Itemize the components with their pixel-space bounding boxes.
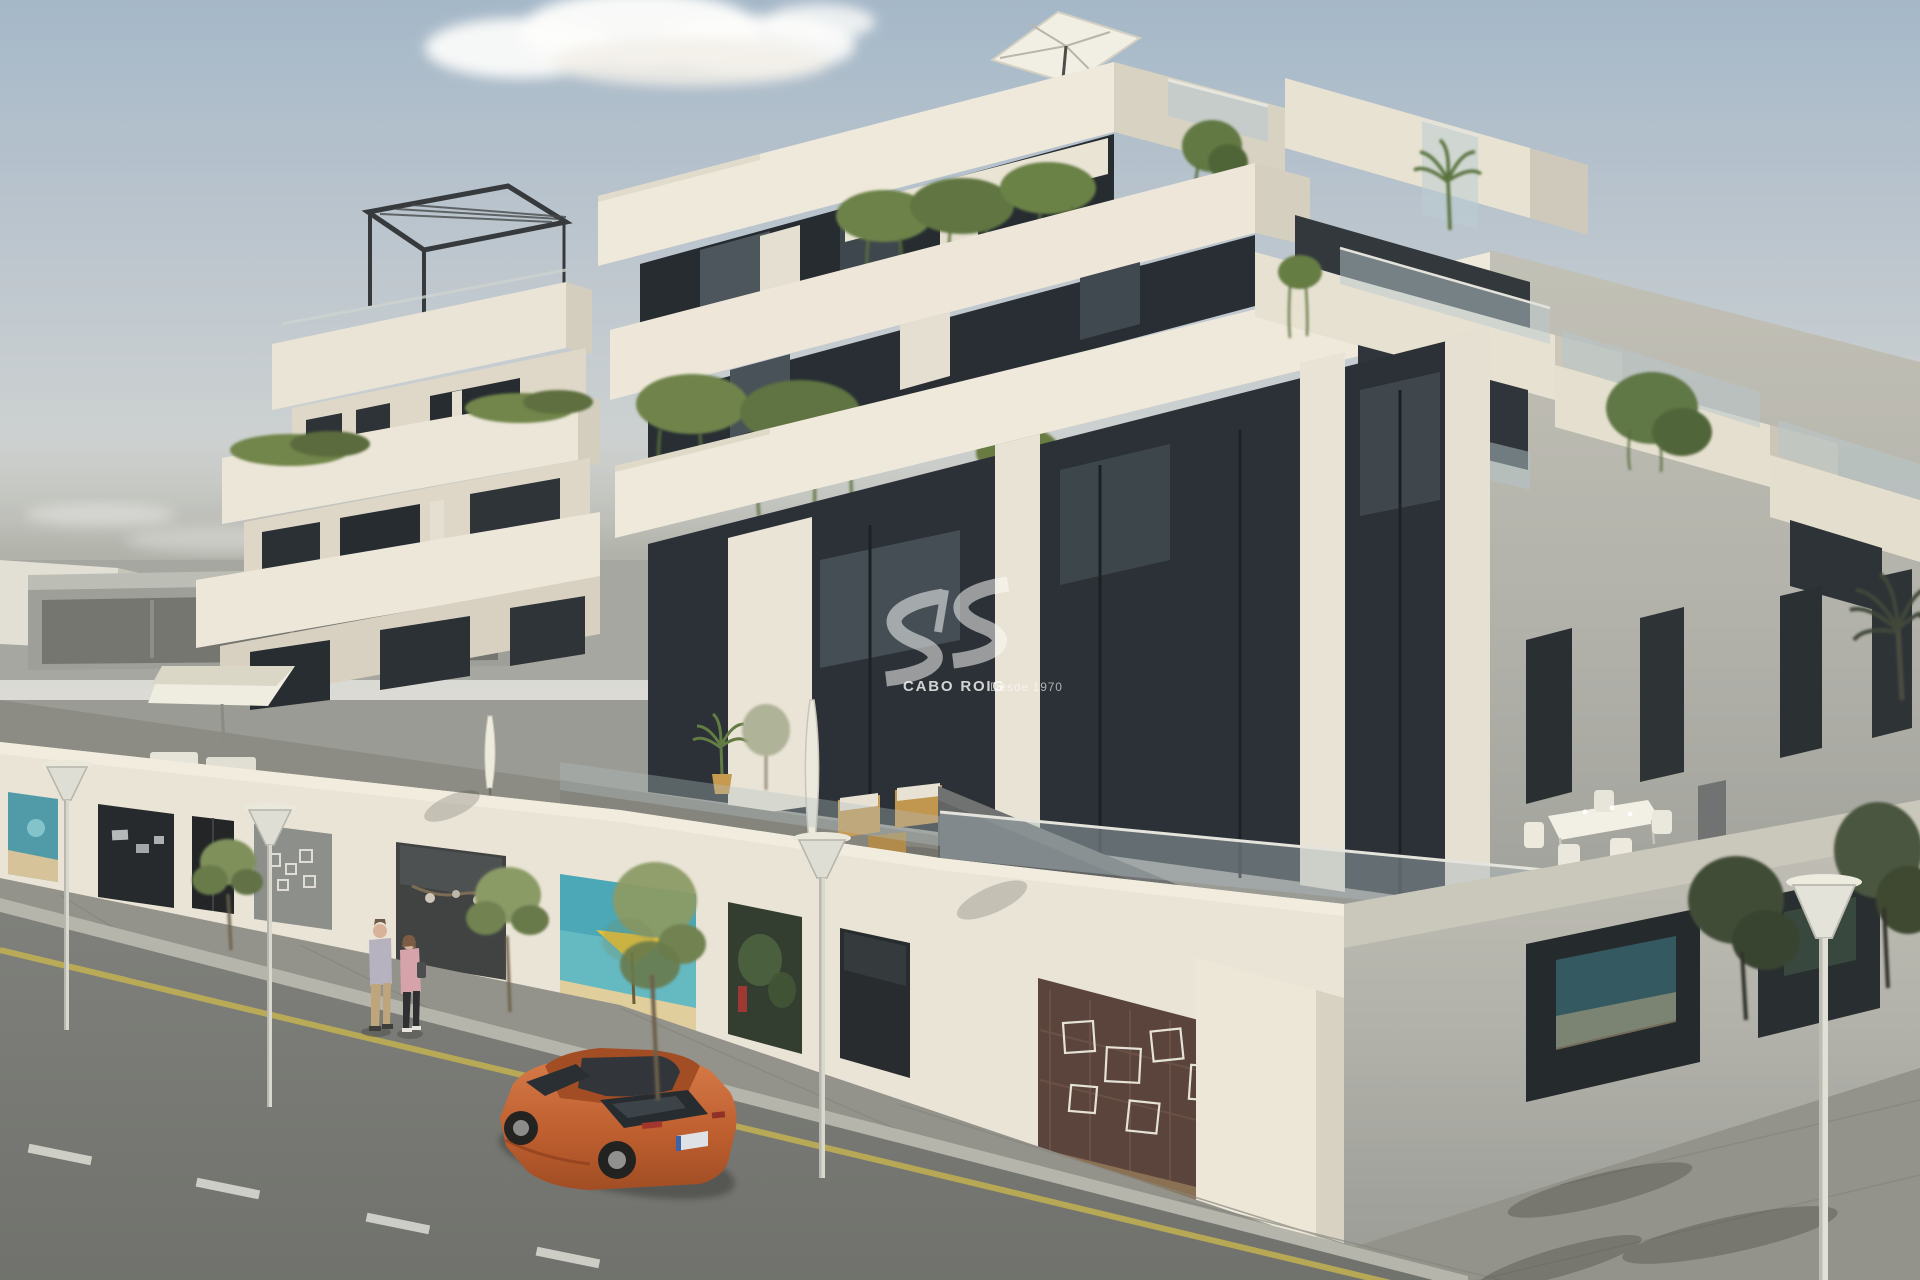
architectural-render-scene: CABO ROIG Desde 1970 <box>0 0 1920 1280</box>
color-cast-overlay <box>0 0 1920 1280</box>
render-canvas: CABO ROIG Desde 1970 <box>0 0 1920 1280</box>
